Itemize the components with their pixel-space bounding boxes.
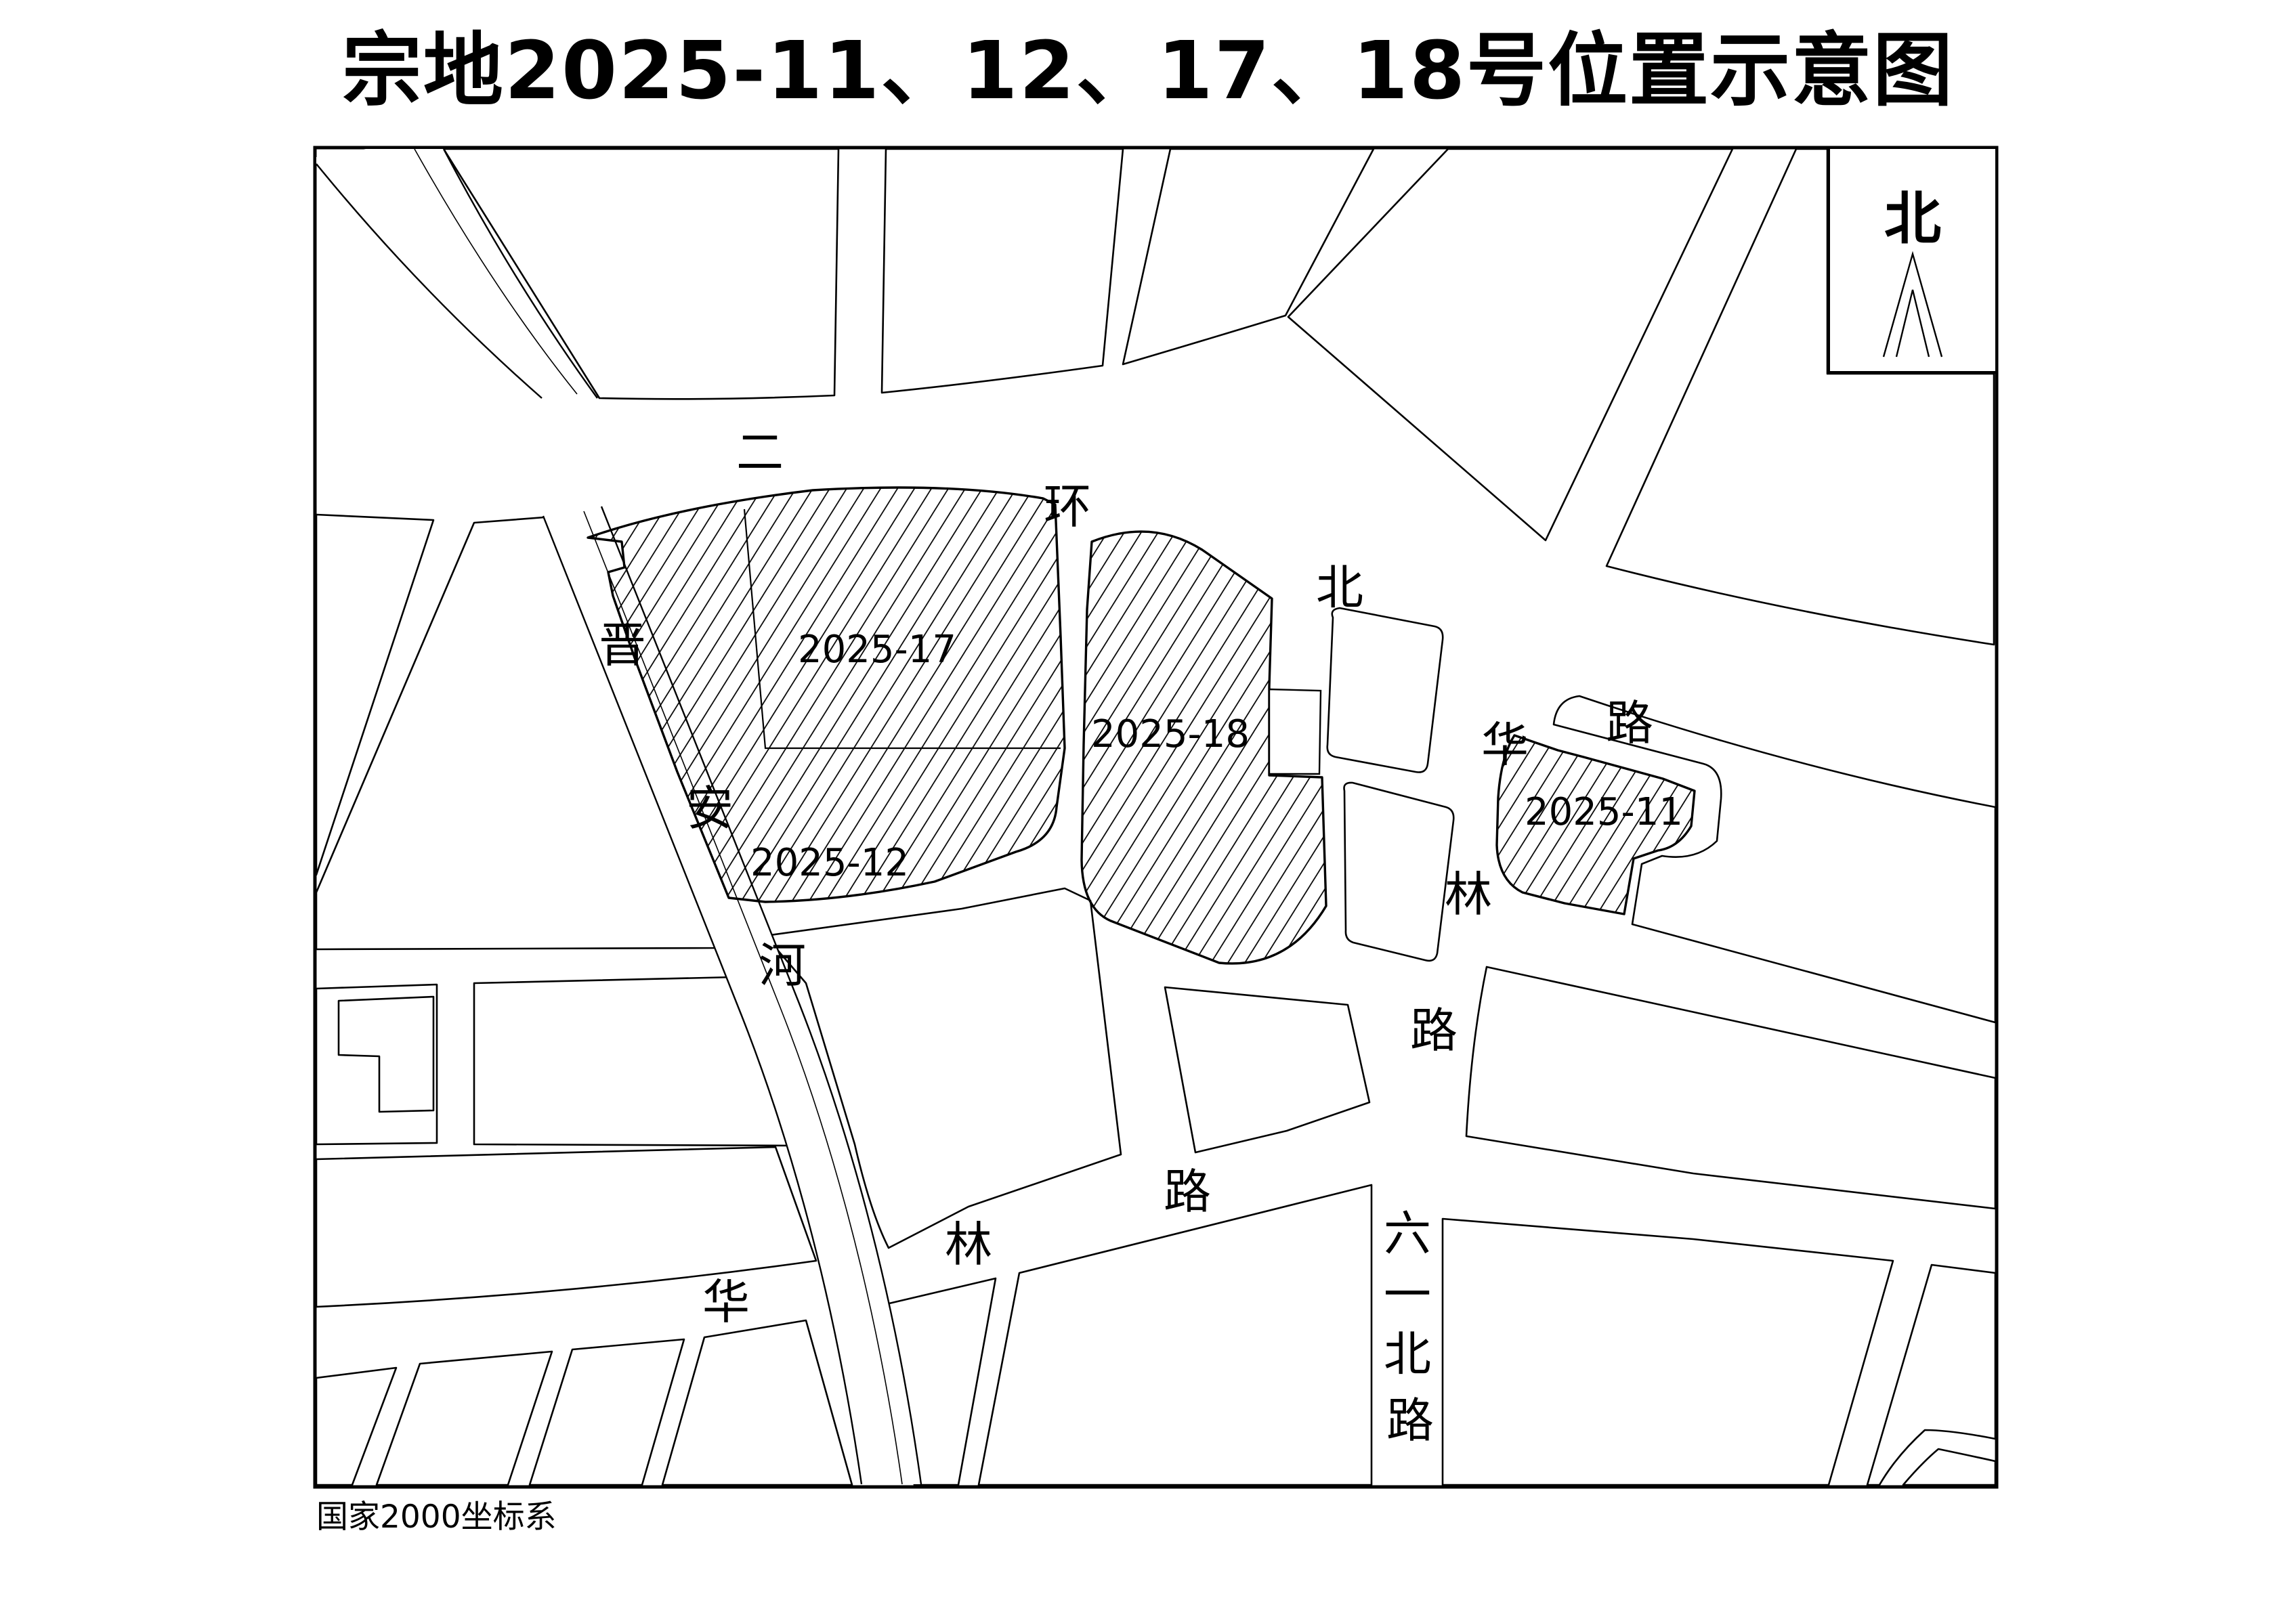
city-block [1165, 987, 1369, 1152]
road-label-hualinlu-char1: 华 [702, 1274, 750, 1330]
coordinate-system-note: 国家2000坐标系 [316, 1498, 557, 1536]
city-block [377, 1352, 552, 1485]
road-label-liuyibeilu-char3: 北 [1384, 1326, 1431, 1382]
city-block [662, 1320, 852, 1485]
road-label-erhuanbeilu-char4: 路 [1606, 695, 1653, 751]
road-label-liuyibeilu-char1: 六 [1384, 1206, 1431, 1261]
road-label-liuyibeilu-char4: 路 [1386, 1393, 1434, 1448]
road-label-erhuanbeilu-char1: 二 [736, 425, 784, 480]
city-block [1327, 608, 1443, 773]
parcel-2025-18-notch [1269, 689, 1321, 774]
parcel-label-2025-18: 2025-18 [1091, 712, 1250, 756]
city-block [882, 149, 1123, 393]
north-box [1829, 148, 1997, 372]
road-label-erhuanbeilu-char3: 北 [1316, 560, 1363, 615]
road-label-liuyibeilu-char2: 一 [1384, 1267, 1431, 1322]
page-title: 宗地2025-11、12、17、18号位置示意图 [342, 24, 1954, 117]
road-label-jinanhe-char1: 晋 [599, 618, 646, 673]
city-block [1903, 1449, 1995, 1485]
road-label-hualinlu-v-char3: 路 [1410, 1003, 1458, 1058]
road-label-erhuanbeilu-char2: 环 [1044, 479, 1091, 534]
north-indicator: 北 [1829, 148, 1997, 372]
parcel-label-2025-12: 2025-12 [750, 841, 909, 885]
road-label-jinanhe-char3: 河 [759, 938, 806, 993]
city-block [1443, 1219, 1893, 1485]
city-block [1867, 1265, 1995, 1485]
city-block [979, 1185, 1372, 1485]
road-label-jinanhe-char2: 安 [686, 781, 734, 836]
road-label-hualinlu-v-char1: 华 [1481, 717, 1529, 773]
parcel-label-2025-17: 2025-17 [798, 628, 956, 672]
road-label-hualinlu-char3: 路 [1164, 1164, 1211, 1219]
map-canvas: 宗地2025-11、12、17、18号位置示意图 2025-17 2025-12… [0, 0, 2296, 1600]
road-label-hualinlu-char2: 林 [945, 1217, 992, 1272]
city-block [1344, 783, 1454, 961]
parcel-label-2025-11: 2025-11 [1525, 790, 1683, 834]
parcel-location-map-page: 宗地2025-11、12、17、18号位置示意图 2025-17 2025-12… [0, 0, 2296, 1600]
road-label-hualinlu-v-char2: 林 [1445, 867, 1492, 922]
city-block [530, 1339, 684, 1485]
north-label: 北 [1884, 186, 1941, 252]
city-block [1466, 967, 1995, 1209]
